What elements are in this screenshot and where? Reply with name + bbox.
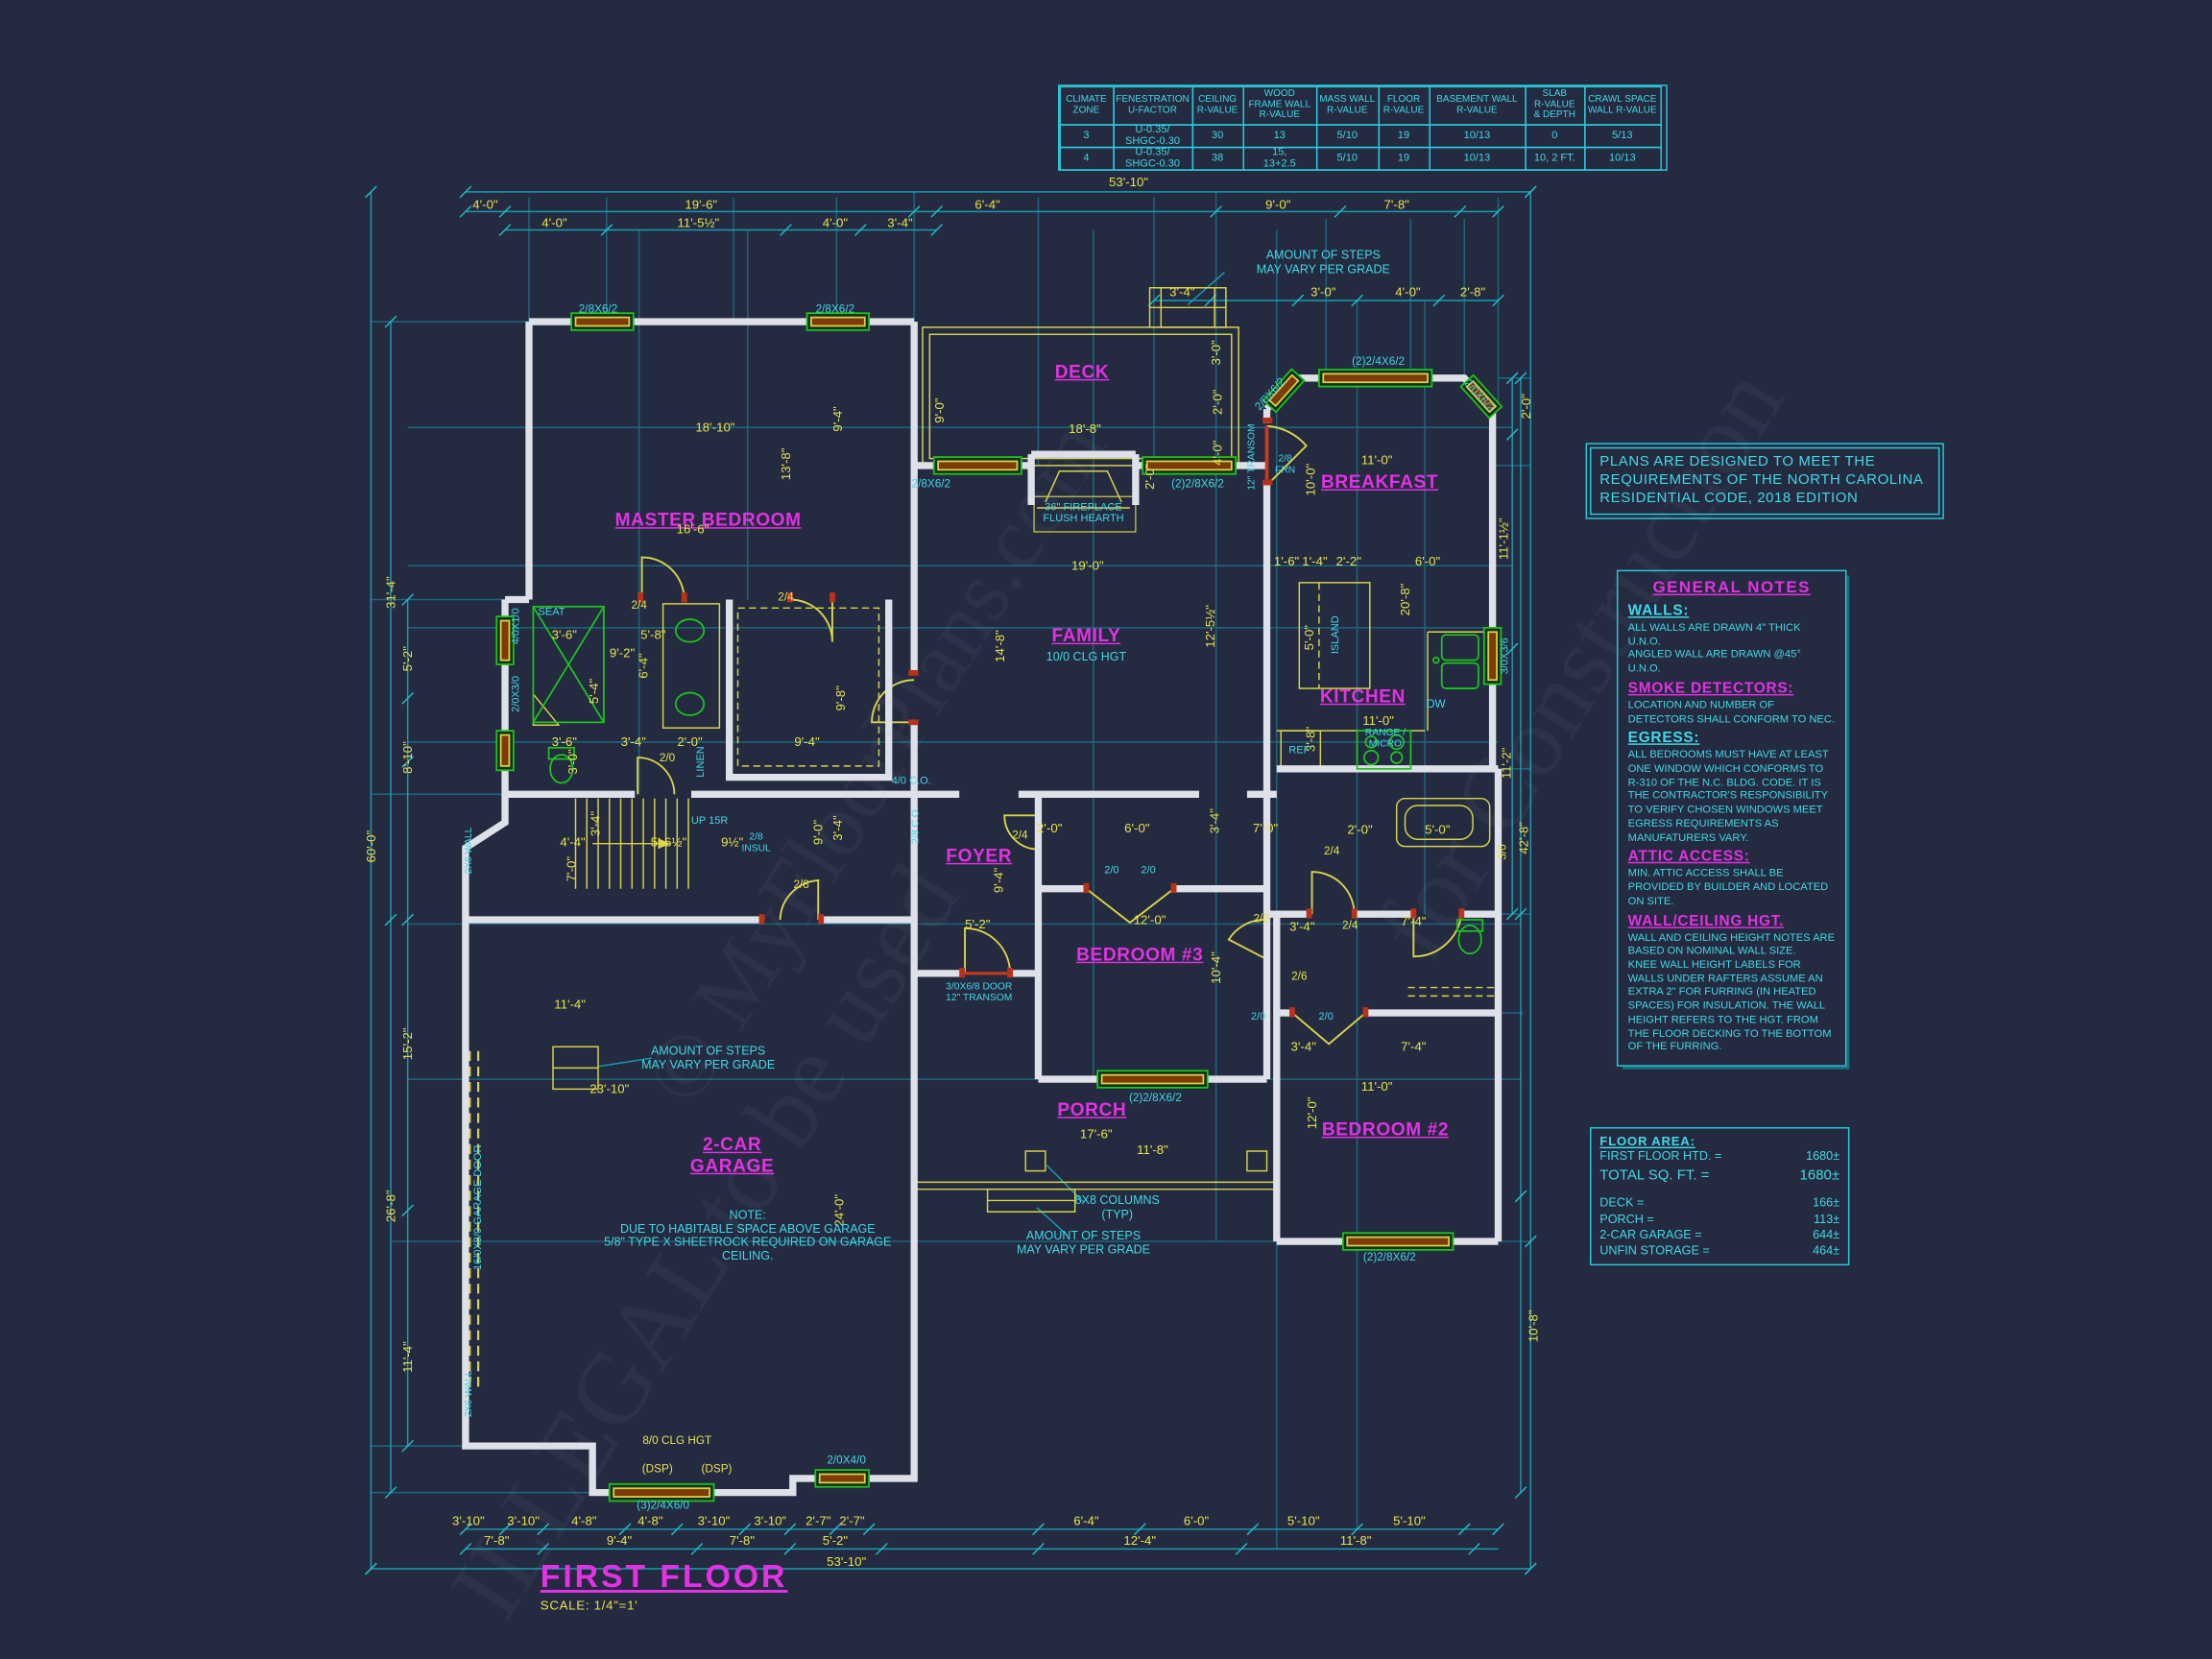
climate-col-header: SLAB R-VALUE & DEPTH xyxy=(1525,85,1585,125)
climate-col-header: CEILING R-VALUE xyxy=(1191,85,1243,125)
refrigerator xyxy=(1281,731,1320,769)
climate-cell: 19 xyxy=(1378,124,1430,148)
floor-area-value: 166± xyxy=(1813,1195,1839,1211)
notes-heading-smoke-detectors: SMOKE DETECTORS: xyxy=(1628,680,1836,697)
notes-heading-wall-ceiling-hgt: WALL/CEILING HGT. xyxy=(1628,912,1836,929)
climate-cell: 4 xyxy=(1059,146,1114,170)
garage-door-dashed xyxy=(469,1051,478,1390)
floor-area-table: FLOOR AREA: FIRST FLOOR HTD. = 1680± TOT… xyxy=(1590,1127,1849,1265)
climate-cell: 30 xyxy=(1191,124,1243,148)
climate-cell: 10/13 xyxy=(1429,124,1526,148)
toilet xyxy=(1458,926,1481,953)
code-note-text: PLANS ARE DESIGNED TO MEET THE REQUIREME… xyxy=(1590,447,1939,516)
notes-heading-attic-access: ATTIC ACCESS: xyxy=(1628,849,1836,866)
floor-area-row-total: TOTAL SQ. FT. = 1680± xyxy=(1599,1166,1839,1185)
notes-body: LOCATION AND NUMBER OF DETECTORS SHALL C… xyxy=(1628,698,1836,726)
climate-cell: 5/10 xyxy=(1315,124,1379,148)
dimension-ticks xyxy=(366,186,1537,1575)
porch-column xyxy=(1025,1151,1046,1171)
closet-doors-bedroom2 xyxy=(1292,1013,1365,1044)
climate-col-header: CRAWL SPACE WALL R-VALUE xyxy=(1583,85,1661,125)
drawing-title-block: FIRST FLOOR SCALE: 1/4"=1' xyxy=(541,1557,788,1612)
page-title: FIRST FLOOR xyxy=(541,1557,788,1596)
breakfast-door xyxy=(1267,426,1307,486)
notes-heading-egress: EGRESS: xyxy=(1628,730,1836,747)
front-door xyxy=(965,928,1010,974)
floorplan-drawing xyxy=(0,0,2212,1659)
notes-body: WALL AND CEILING HEIGHT NOTES ARE BASED … xyxy=(1628,930,1836,1054)
floor-area-value: 1680± xyxy=(1800,1166,1840,1185)
code-note: PLANS ARE DESIGNED TO MEET THE REQUIREME… xyxy=(1586,443,1944,519)
floor-area-label: TOTAL SQ. FT. = xyxy=(1599,1166,1709,1185)
sink xyxy=(676,619,704,642)
floor-area-label: 2-CAR GARAGE = xyxy=(1599,1227,1701,1242)
floor-area-value: 1680± xyxy=(1806,1148,1839,1164)
kitchen-sink xyxy=(1442,635,1479,660)
climate-cell: 15, 13+2.5 xyxy=(1242,146,1317,170)
porch-column xyxy=(1247,1151,1267,1171)
notes-body: ALL WALLS ARE DRAWN 4" THICK U.N.O. ANGL… xyxy=(1628,621,1836,676)
stairs-up-arrow xyxy=(659,839,668,848)
climate-col-header: WOOD FRAME WALL R-VALUE xyxy=(1242,85,1317,125)
range xyxy=(1358,731,1411,769)
scale-note: SCALE: 1/4"=1' xyxy=(541,1599,788,1613)
floor-area-value: 644± xyxy=(1813,1227,1839,1242)
floor-area-row: FIRST FLOOR HTD. = 1680± xyxy=(1599,1148,1839,1164)
climate-col-header: FLOOR R-VALUE xyxy=(1378,85,1430,125)
floor-area-heading: FLOOR AREA: xyxy=(1599,1134,1839,1148)
fixtures xyxy=(533,607,1482,953)
notes-body: ALL BEDROOMS MUST HAVE AT LEAST ONE WIND… xyxy=(1628,748,1836,844)
floor-area-row: DECK = 166± xyxy=(1599,1195,1839,1211)
climate-cell: 5/13 xyxy=(1583,124,1661,148)
notes-body: MIN. ATTIC ACCESS SHALL BE PROVIDED BY B… xyxy=(1628,867,1836,908)
general-notes-title: GENERAL NOTES xyxy=(1628,580,1836,597)
sink xyxy=(676,692,704,715)
floor-area-label: DECK = xyxy=(1599,1195,1644,1211)
climate-cell: 10/13 xyxy=(1429,146,1526,170)
general-notes: GENERAL NOTES WALLS: ALL WALLS ARE DRAWN… xyxy=(1617,570,1847,1067)
climate-table: CLIMATE ZONE FENESTRATION U-FACTOR CEILI… xyxy=(1058,84,1668,171)
door-swings xyxy=(637,426,1461,1045)
deck-porch-geometry xyxy=(469,288,1495,1390)
climate-cell: 38 xyxy=(1191,146,1243,170)
floor-area-label: PORCH = xyxy=(1599,1212,1654,1227)
floor-area-row: 2-CAR GARAGE = 644± xyxy=(1599,1227,1839,1242)
deck-outline xyxy=(923,327,1238,466)
floor-area-label: FIRST FLOOR HTD. = xyxy=(1599,1148,1721,1164)
walls xyxy=(466,322,1499,1493)
porch-edge xyxy=(914,1182,1277,1189)
notes-heading-walls: WALLS: xyxy=(1628,602,1836,619)
climate-cell: 10/13 xyxy=(1583,146,1661,170)
climate-col-header: FENESTRATION U-FACTOR xyxy=(1113,85,1193,125)
dimension-lines xyxy=(366,186,1537,1575)
floor-area-value: 113± xyxy=(1814,1212,1839,1227)
fireplace-firebox xyxy=(1046,471,1121,502)
shower-seat xyxy=(533,694,558,725)
floor-area-row: PORCH = 113± xyxy=(1599,1212,1839,1227)
blueprint-stage: MASTER BEDROOMDECKBREAKFASTFAMILY10/0 CL… xyxy=(0,0,2212,1659)
climate-cell: U-0.35/ SHGC-0.30 xyxy=(1113,124,1193,148)
windows xyxy=(496,313,1502,1501)
garage-entry-door xyxy=(781,880,819,920)
bath-vanity xyxy=(663,604,720,728)
climate-col-header: MASS WALL R-VALUE xyxy=(1315,85,1379,125)
climate-cell: 0 xyxy=(1525,124,1585,148)
kitchen-counter xyxy=(1277,632,1493,731)
floor-area-value: 464± xyxy=(1813,1242,1839,1258)
climate-cell: 5/10 xyxy=(1315,146,1379,170)
climate-col-header: CLIMATE ZONE xyxy=(1059,85,1114,125)
floor-area-row: UNFIN STORAGE = 464± xyxy=(1599,1242,1839,1258)
blueprint-page: { "title_block": {"title": "FIRST FLOOR"… xyxy=(0,0,2212,1659)
climate-cell: 3 xyxy=(1059,124,1114,148)
floor-area-label: UNFIN STORAGE = xyxy=(1599,1242,1709,1258)
closet-doors-bedroom3 xyxy=(1086,889,1173,923)
climate-cell: 19 xyxy=(1378,146,1430,170)
climate-cell: 10, 2 FT. xyxy=(1525,146,1585,170)
climate-col-header: BASEMENT WALL R-VALUE xyxy=(1429,85,1526,125)
climate-cell: 13 xyxy=(1242,124,1317,148)
climate-cell: U-0.35/ SHGC-0.30 xyxy=(1113,146,1193,170)
fireplace-note-box xyxy=(1034,496,1136,532)
kitchen-island xyxy=(1299,583,1369,688)
